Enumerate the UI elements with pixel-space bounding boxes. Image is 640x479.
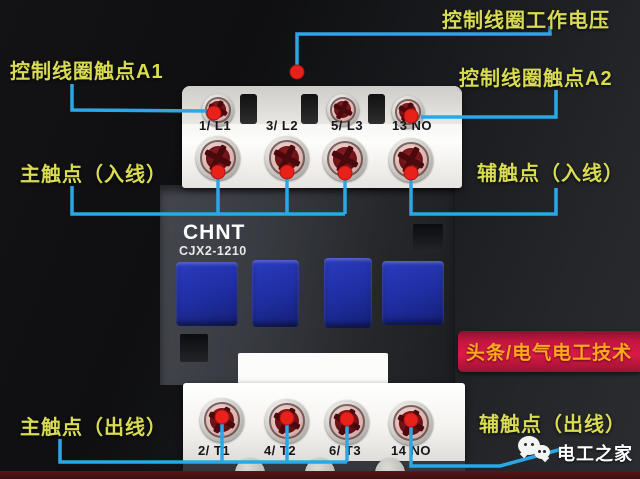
label-aux-in: 辅触点（入线）: [477, 157, 624, 186]
label-main-out: 主触点（出线）: [20, 411, 167, 440]
bubble-eye: [531, 443, 534, 446]
blue-module: [176, 262, 238, 326]
terminal-label-2T1: 2/ T1: [198, 443, 230, 458]
label-coil-voltage: 控制线圈工作电压: [442, 4, 610, 33]
annotated-contactor-photo: 1/ L1 3/ L2 5/ L3 13 NO CHNT CJX2-1210 2…: [0, 0, 640, 479]
screw-head: [202, 142, 234, 174]
wechat-bubble-small: [534, 445, 550, 459]
main-screw-L1: [196, 136, 240, 180]
main-screw-L2: [265, 136, 309, 180]
screw-head: [329, 143, 361, 175]
bubble-eye: [538, 450, 541, 453]
table-edge: [0, 471, 640, 479]
terminal-tab: [368, 94, 385, 124]
aux-screw-13NO: [389, 138, 433, 182]
label-main-in: 主触点（入线）: [20, 158, 167, 187]
aux-screw-14NO: [389, 401, 433, 445]
terminal-tab: [301, 94, 318, 124]
terminal-label-14NO: 14 NO: [391, 443, 431, 458]
terminal-tab: [240, 94, 257, 124]
screw-head: [395, 407, 427, 439]
blue-module: [252, 260, 299, 327]
blue-module: [324, 258, 372, 328]
main-screw-L3: [323, 137, 367, 181]
bubble-eye: [543, 450, 546, 453]
main-screw-T3: [325, 400, 369, 444]
headline-banner: 头条/电气电工技术: [458, 331, 640, 372]
screw-head: [331, 406, 363, 438]
marker-dot-coil-voltage: [290, 65, 304, 79]
body-recess: [413, 224, 443, 252]
blue-module: [382, 261, 444, 325]
bubble-eye: [524, 443, 527, 446]
label-coil-a2: 控制线圈触点A2: [459, 62, 613, 91]
main-screw-T2: [265, 399, 309, 443]
terminal-label-4T2: 4/ T2: [264, 443, 296, 458]
screw-head: [271, 405, 303, 437]
terminal-label-6T3: 6/ T3: [329, 443, 361, 458]
body-recess: [180, 334, 208, 362]
model-number: CJX2-1210: [179, 244, 247, 258]
screw-head: [395, 144, 427, 176]
banner-text: 头条/电气电工技术: [466, 338, 632, 365]
terminal-label-1L1: 1/ L1: [199, 118, 231, 133]
bubble-tail: [520, 450, 528, 458]
bubble-tail: [541, 454, 549, 462]
terminal-label-5L3: 5/ L3: [331, 118, 363, 133]
wechat-icon: [518, 436, 556, 468]
screw-head: [206, 404, 238, 436]
label-aux-out: 辅触点（出线）: [479, 408, 626, 437]
terminal-label-3L2: 3/ L2: [266, 118, 298, 133]
label-coil-a1: 控制线圈触点A1: [10, 55, 164, 84]
screw-head: [271, 142, 303, 174]
watermark-text: 电工之家: [557, 440, 633, 466]
brand-logo: CHNT: [183, 221, 245, 245]
main-screw-T1: [200, 398, 244, 442]
terminal-label-13NO: 13 NO: [392, 118, 432, 133]
